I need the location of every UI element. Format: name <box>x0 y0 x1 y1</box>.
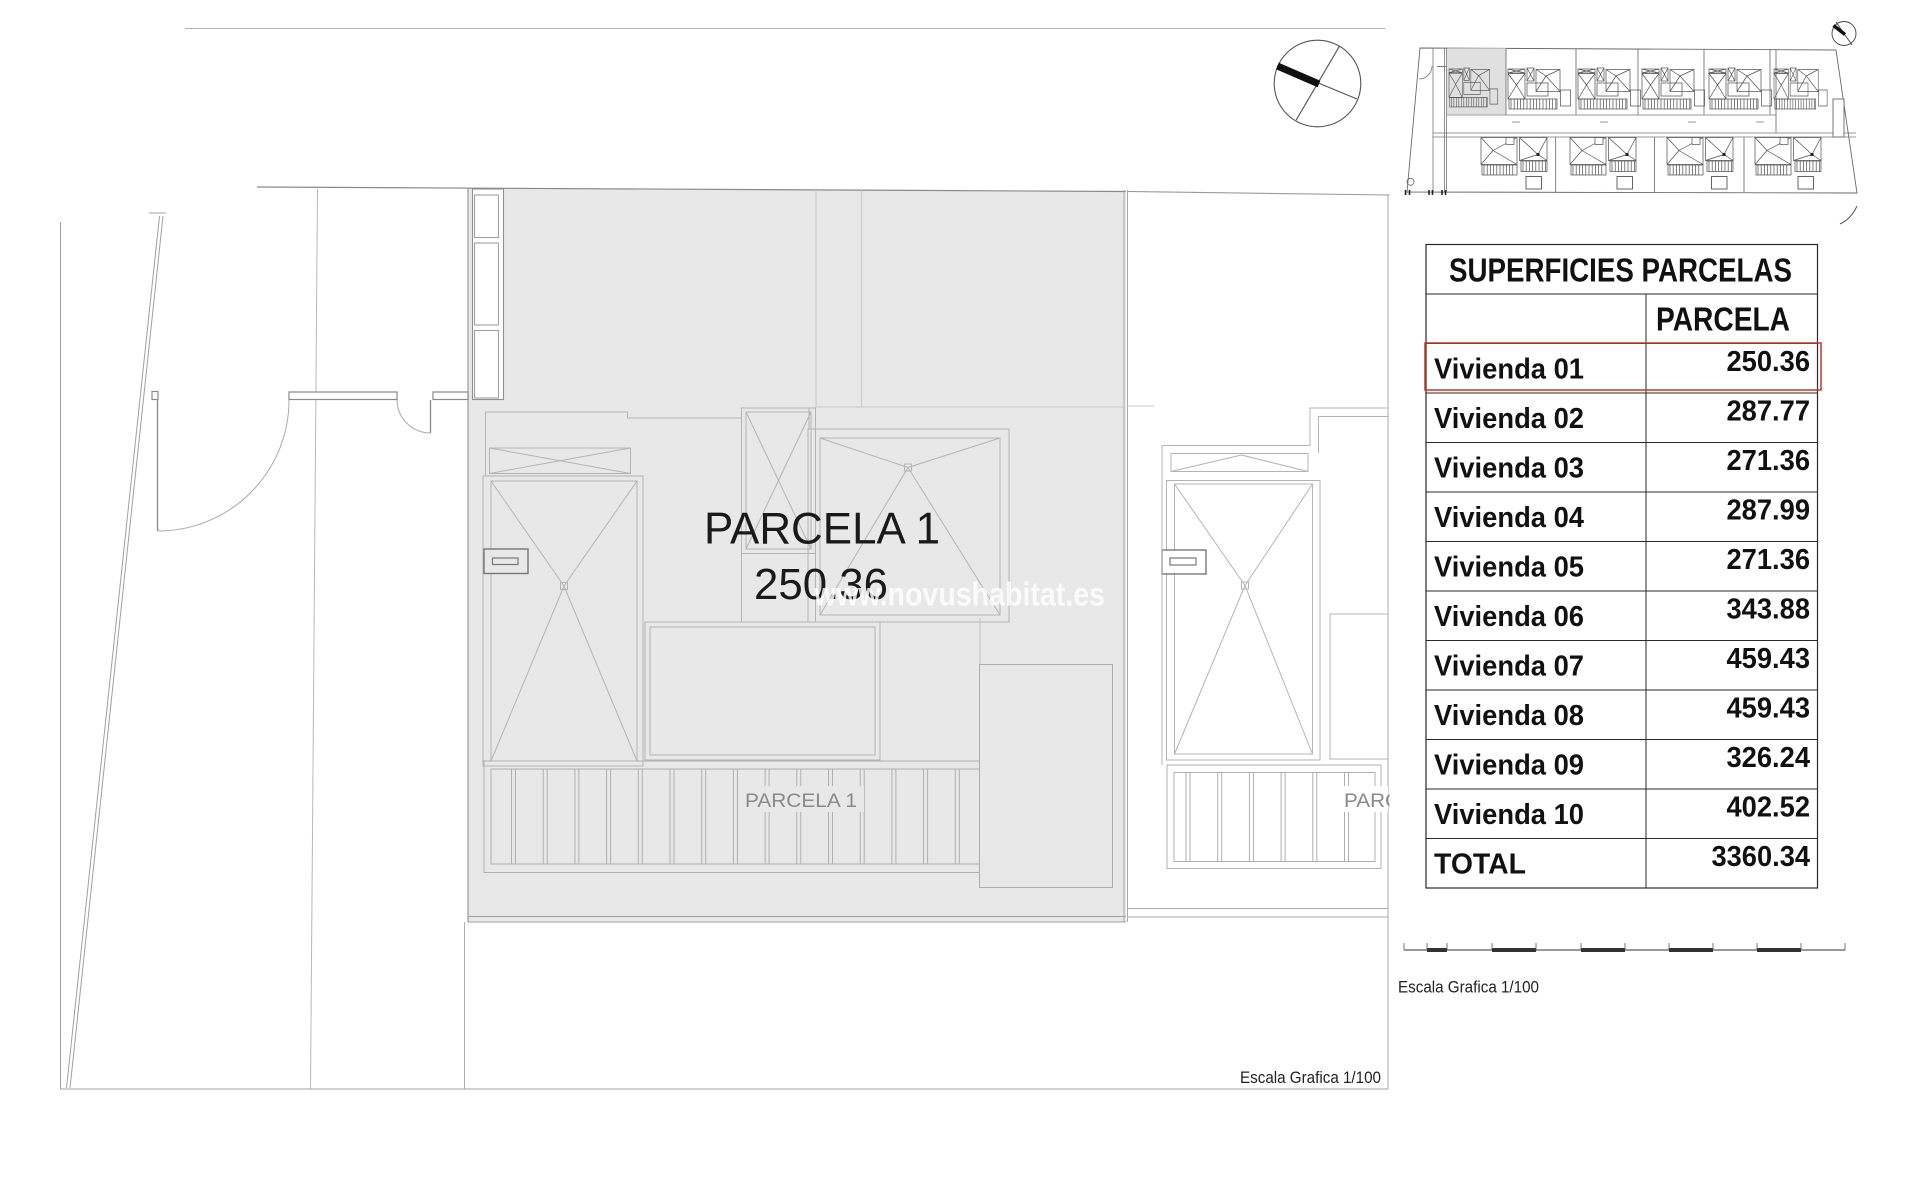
svg-text:459.43: 459.43 <box>1727 693 1811 725</box>
svg-text:459.43: 459.43 <box>1727 643 1811 675</box>
svg-text:3360.34: 3360.34 <box>1712 841 1811 873</box>
svg-text:www.novushabitat.es: www.novushabitat.es <box>813 577 1105 614</box>
svg-text:Vivienda 01: Vivienda 01 <box>1434 354 1584 386</box>
svg-text:250.36: 250.36 <box>1727 346 1811 378</box>
svg-text:Vivienda 09: Vivienda 09 <box>1434 750 1584 782</box>
svg-text:271.36: 271.36 <box>1727 445 1811 477</box>
svg-text:Vivienda 02: Vivienda 02 <box>1434 403 1584 435</box>
svg-text:Vivienda 03: Vivienda 03 <box>1434 453 1584 485</box>
svg-text:343.88: 343.88 <box>1727 594 1811 626</box>
svg-text:SUPERFICIES PARCELAS: SUPERFICIES PARCELAS <box>1449 253 1792 290</box>
svg-text:Vivienda 07: Vivienda 07 <box>1434 651 1584 683</box>
svg-text:Escala Grafica 1/100: Escala Grafica 1/100 <box>1398 978 1539 997</box>
svg-text:287.99: 287.99 <box>1727 495 1811 527</box>
svg-text:402.52: 402.52 <box>1727 792 1811 824</box>
svg-text:Vivienda 08: Vivienda 08 <box>1434 700 1584 732</box>
svg-text:Vivienda 04: Vivienda 04 <box>1434 502 1584 534</box>
svg-text:PARCELA 1: PARCELA 1 <box>704 504 940 553</box>
svg-text:Escala Grafica 1/100: Escala Grafica 1/100 <box>1240 1068 1381 1087</box>
svg-text:271.36: 271.36 <box>1727 544 1811 576</box>
svg-text:326.24: 326.24 <box>1727 742 1811 774</box>
svg-text:Vivienda 06: Vivienda 06 <box>1434 601 1584 633</box>
svg-text:PARCELA 1: PARCELA 1 <box>745 790 857 812</box>
svg-text:Vivienda 05: Vivienda 05 <box>1434 552 1584 584</box>
svg-text:Vivienda 10: Vivienda 10 <box>1434 799 1584 831</box>
svg-text:287.77: 287.77 <box>1727 396 1811 428</box>
svg-text:TOTAL: TOTAL <box>1434 849 1526 881</box>
svg-text:PARCELA: PARCELA <box>1656 302 1790 339</box>
